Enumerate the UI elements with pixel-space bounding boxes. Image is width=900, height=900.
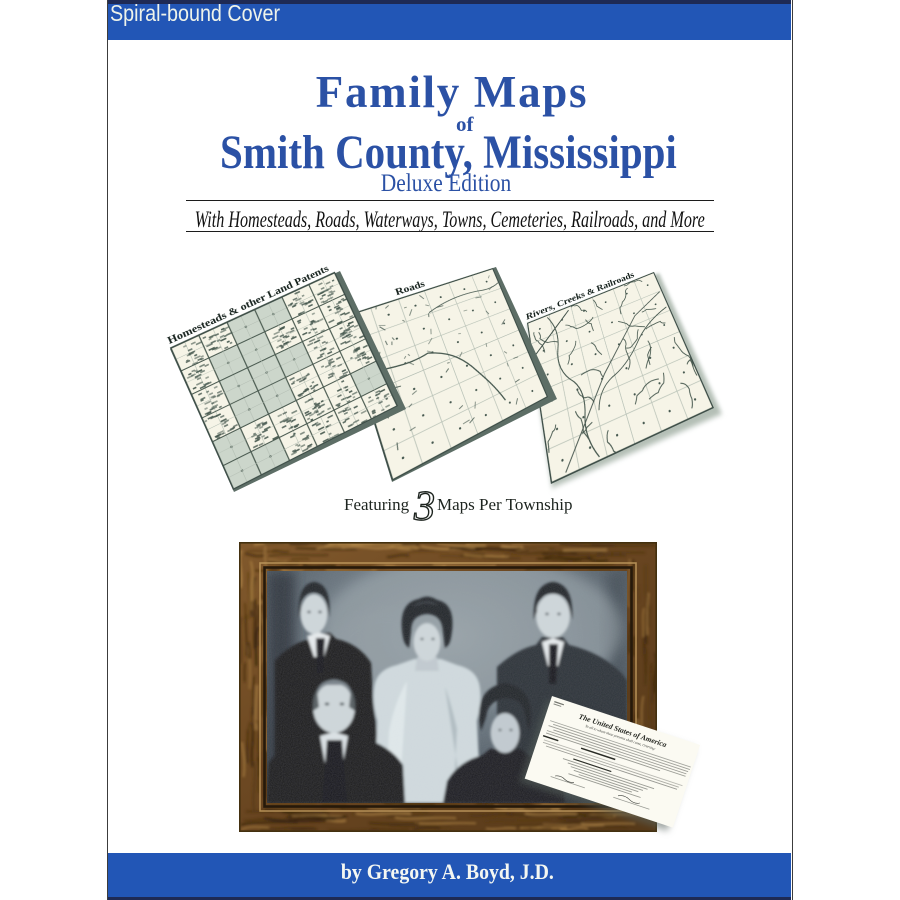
svg-text:3: 3 xyxy=(413,484,435,528)
